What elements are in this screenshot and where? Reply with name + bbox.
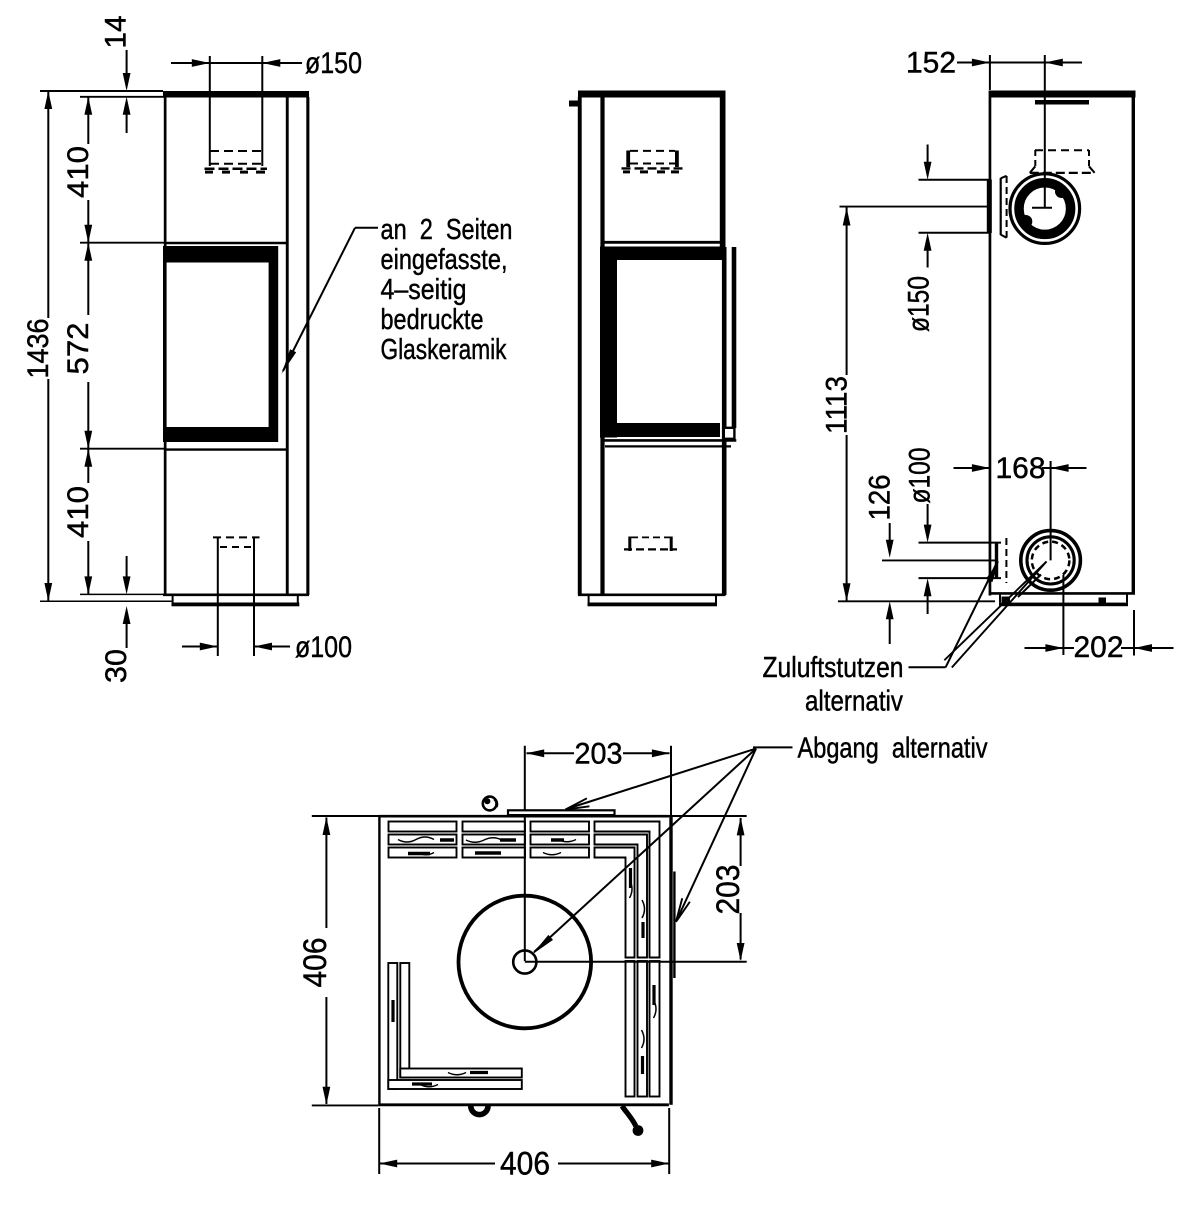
svg-text:168: 168: [996, 452, 1046, 485]
svg-text:ø100: ø100: [295, 631, 352, 664]
svg-text:30: 30: [100, 649, 133, 683]
svg-text:an 2 Seiten: an 2 Seiten: [381, 214, 513, 246]
svg-text:203: 203: [710, 865, 746, 915]
svg-text:ø150: ø150: [903, 276, 936, 332]
svg-text:ø100: ø100: [904, 448, 937, 504]
svg-text:410: 410: [62, 146, 95, 198]
svg-text:Zuluftstutzen: Zuluftstutzen: [763, 652, 904, 684]
svg-text:572: 572: [62, 323, 95, 375]
svg-text:126: 126: [864, 475, 897, 521]
svg-text:eingefasste,: eingefasste,: [381, 244, 508, 276]
svg-text:Abgang alternativ: Abgang alternativ: [798, 733, 989, 765]
svg-text:152: 152: [906, 47, 956, 80]
svg-text:alternativ: alternativ: [805, 686, 904, 718]
svg-text:ø150: ø150: [305, 47, 362, 80]
svg-text:bedruckte: bedruckte: [381, 304, 484, 336]
svg-text:406: 406: [500, 1146, 550, 1182]
svg-text:14: 14: [100, 16, 133, 49]
svg-text:Glaskeramik: Glaskeramik: [381, 334, 508, 366]
svg-text:1436: 1436: [22, 319, 55, 379]
svg-text:410: 410: [62, 486, 95, 538]
svg-text:406: 406: [297, 938, 333, 988]
svg-text:202: 202: [1074, 631, 1124, 664]
svg-text:203: 203: [575, 738, 623, 771]
svg-text:4–seitig: 4–seitig: [381, 274, 467, 306]
svg-text:1113: 1113: [821, 376, 854, 434]
